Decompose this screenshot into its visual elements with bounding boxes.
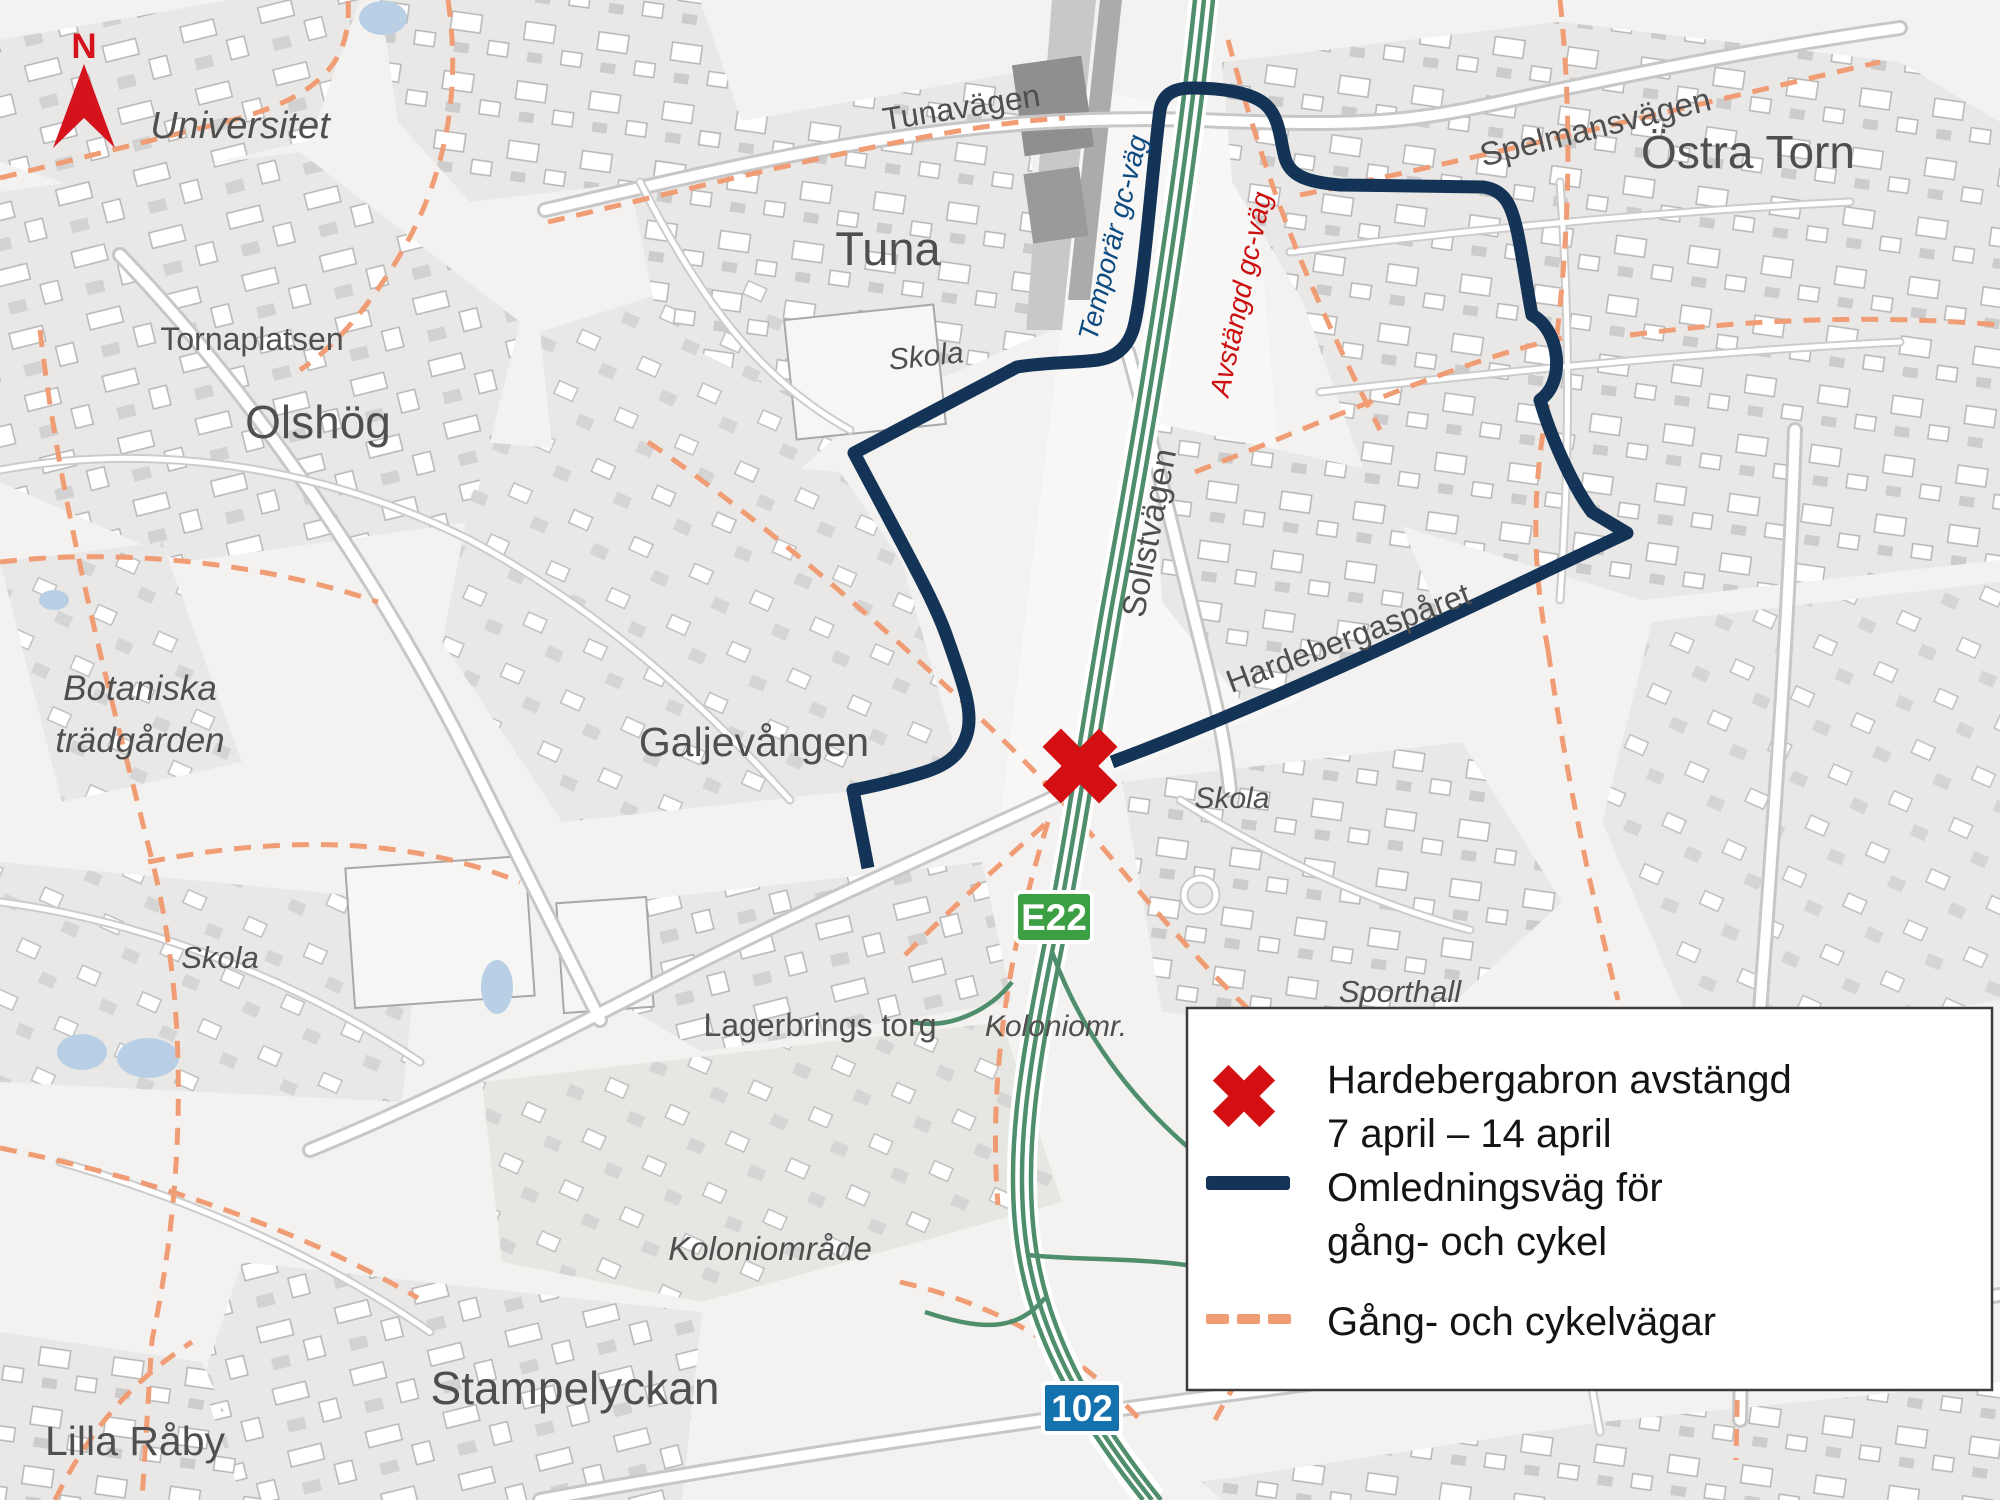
map-canvas: E22 102 Universitet Tornaplatsen Olshög …	[0, 0, 2000, 1500]
label-galjevangen: Galjevången	[639, 719, 869, 765]
north-arrow-label: N	[71, 27, 96, 66]
label-sporthall: Sporthall	[1339, 974, 1462, 1009]
e22-badge-label: E22	[1021, 897, 1087, 938]
legend: Hardebergabron avstängd 7 april – 14 apr…	[1187, 1008, 1992, 1390]
label-stampelyckan: Stampelyckan	[431, 1362, 720, 1414]
map-page: E22 102 Universitet Tornaplatsen Olshög …	[0, 0, 2000, 1500]
label-koloniomr: Koloniomr.	[985, 1010, 1127, 1043]
label-tuna: Tuna	[835, 222, 941, 275]
gc-path-dashed-icon	[1206, 1314, 1291, 1324]
road-102-badge: 102	[1043, 1383, 1121, 1433]
label-lilla-raby: Lilla Råby	[45, 1418, 226, 1464]
e22-badge: E22	[1016, 892, 1092, 942]
label-olshog: Olshög	[245, 396, 391, 448]
legend-item-gc-paths-line1: Gång- och cykelvägar	[1327, 1300, 1716, 1344]
label-skola-vast: Skola	[181, 940, 259, 975]
legend-item-detour-line1: Omledningsväg för	[1327, 1166, 1663, 1210]
label-botaniska-line1: Botaniska	[63, 669, 217, 708]
road-102-badge-label: 102	[1051, 1388, 1113, 1429]
label-lagerbrings-torg: Lagerbrings torg	[703, 1007, 936, 1043]
legend-item-closure-line1: Hardebergabron avstängd	[1327, 1058, 1792, 1102]
label-skola-ost: Skola	[1194, 782, 1269, 815]
detour-line-icon	[1206, 1176, 1290, 1190]
legend-item-closure-line2: 7 april – 14 april	[1327, 1112, 1612, 1156]
legend-item-detour-line2: gång- och cykel	[1327, 1220, 1607, 1264]
label-universitet: Universitet	[150, 105, 331, 147]
label-botaniska-line2: trädgården	[55, 721, 224, 760]
label-koloniomrade: Koloniområde	[668, 1230, 872, 1267]
label-tornaplatsen: Tornaplatsen	[160, 321, 343, 357]
label-ostra-torn: Östra Torn	[1641, 126, 1855, 178]
